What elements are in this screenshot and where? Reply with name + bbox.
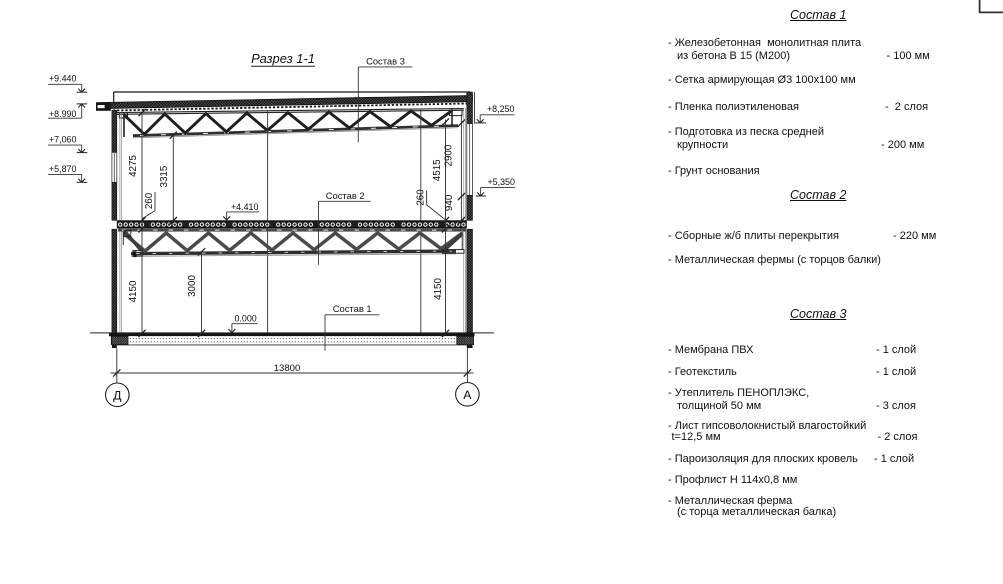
svg-text:+8,250: +8,250	[487, 104, 514, 114]
svg-text:3000: 3000	[187, 275, 198, 297]
svg-text:+4.410: +4.410	[231, 202, 258, 212]
svg-text:Разрез 1-1: Разрез 1-1	[251, 51, 315, 66]
svg-text:4275: 4275	[128, 155, 139, 177]
svg-text:+5,350: +5,350	[488, 177, 515, 187]
svg-text:0.000: 0.000	[235, 313, 257, 323]
svg-text:+5,870: +5,870	[49, 164, 76, 174]
svg-text:260: 260	[415, 189, 426, 206]
svg-text:260: 260	[144, 192, 155, 209]
svg-text:А: А	[463, 388, 472, 402]
svg-text:4150: 4150	[128, 280, 139, 302]
svg-text:Состав 3: Состав 3	[366, 56, 405, 67]
svg-text:Состав 1: Состав 1	[333, 303, 372, 314]
svg-text:2900: 2900	[444, 144, 455, 166]
svg-text:3315: 3315	[159, 165, 170, 187]
svg-text:Состав 2: Состав 2	[326, 190, 365, 201]
svg-text:13800: 13800	[274, 363, 301, 374]
svg-text:4515: 4515	[432, 159, 443, 181]
svg-text:4150: 4150	[433, 278, 444, 300]
svg-text:940: 940	[444, 194, 455, 211]
svg-text:+8.990: +8.990	[49, 109, 76, 119]
svg-text:Д: Д	[113, 388, 122, 402]
svg-text:+9.440: +9.440	[49, 74, 76, 84]
svg-text:+7,060: +7,060	[49, 135, 76, 145]
